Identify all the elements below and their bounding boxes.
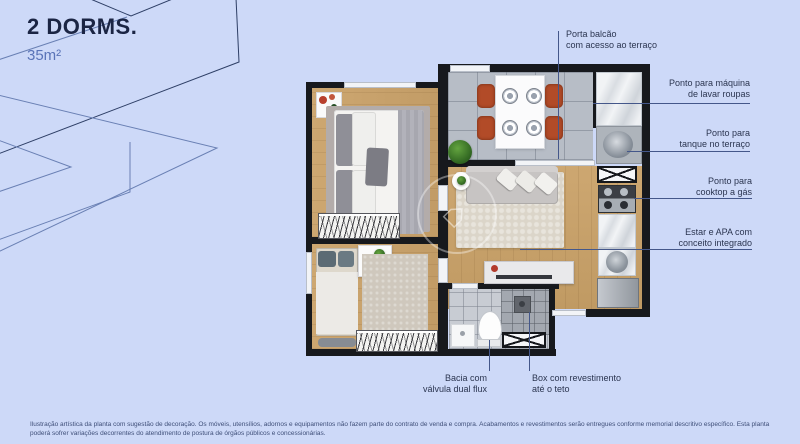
dining-chair: [477, 116, 495, 140]
callout-bacia-line: [489, 340, 490, 371]
bedroom2-wardrobe: [356, 330, 438, 352]
callout-tanque-line2: tanque no terraço: [600, 139, 750, 150]
callout-cooktop: Ponto para cooktop a gás: [602, 176, 752, 197]
vanity-faucet: [460, 331, 465, 336]
wall-mid-1: [438, 72, 448, 185]
shower-head-center: [519, 301, 525, 307]
bedroom2-door: [438, 258, 448, 283]
callout-box-line2: até o teto: [532, 384, 662, 395]
wall-mid-3: [438, 283, 448, 349]
plate: [526, 120, 542, 136]
burner: [604, 201, 612, 209]
callout-bacia-line2: válvula dual flux: [387, 384, 487, 395]
bedroom1-wardrobe: [318, 213, 400, 239]
console-decor: [491, 265, 498, 272]
tv: [496, 275, 552, 279]
callout-tanque: Ponto para tanque no terraço: [600, 128, 750, 149]
bedroom2-bench: [318, 338, 356, 347]
wall-bottom-right: [586, 309, 650, 317]
nightstand-decor-red: [319, 96, 327, 104]
callout-box: Box com revestimento até o teto: [532, 373, 662, 394]
dining-table: [496, 76, 544, 148]
bed-throw-pillow: [365, 147, 389, 186]
wall-bathroom-right: [549, 283, 555, 356]
sink-basin: [606, 251, 628, 273]
bedroom2-window: [306, 252, 312, 294]
kitchen-sink: [598, 248, 636, 276]
callout-estar: Estar e APA com conceito integrado: [602, 227, 752, 248]
plate: [502, 88, 518, 104]
callout-cooktop-line1: Ponto para: [602, 176, 752, 187]
floorplan-page: 2 DORMS. 35m²: [0, 0, 800, 444]
wall-left: [306, 82, 312, 356]
callout-estar-line: [520, 249, 752, 250]
plate: [526, 88, 542, 104]
callout-bacia-line1: Bacia com: [387, 373, 487, 384]
bathroom-door: [452, 283, 478, 289]
disclaimer-text: Ilustração artística da planta com suges…: [30, 420, 775, 438]
dining-chair: [545, 84, 563, 108]
refrigerator: [597, 278, 639, 308]
callout-porta-balcao-line1: Porta balcão: [566, 29, 657, 40]
callout-maquina-line: [593, 103, 750, 104]
dining-chair: [545, 116, 563, 140]
bedroom2-rug: [362, 254, 428, 330]
nightstand-decor-red2: [329, 94, 335, 100]
callout-maquina: Ponto para máquina de lavar roupas: [600, 78, 750, 99]
tv-console: [484, 261, 574, 284]
shower-head: [514, 296, 531, 313]
callout-tanque-line: [627, 151, 750, 152]
terrace-window: [450, 65, 490, 72]
callout-estar-line2: conceito integrado: [602, 238, 752, 249]
callout-estar-line1: Estar e APA com: [602, 227, 752, 238]
callout-cooktop-line: [634, 198, 752, 199]
callout-bacia: Bacia com válvula dual flux: [387, 373, 487, 394]
callout-tanque-line1: Ponto para: [600, 128, 750, 139]
callout-porta-balcao: Porta balcão com acesso ao terraço: [566, 29, 657, 50]
callout-porta-balcao-line2: com acesso ao terraço: [566, 40, 657, 51]
callout-cooktop-line2: cooktop a gás: [602, 187, 752, 198]
single-bed-pillow: [318, 251, 336, 267]
callout-box-line1: Box com revestimento: [532, 373, 662, 384]
brand-watermark: [417, 174, 497, 254]
shower-xbox: [502, 332, 546, 348]
plate: [502, 120, 518, 136]
terrace-plant: [448, 140, 472, 164]
burner: [620, 201, 628, 209]
entry-door: [552, 310, 586, 316]
callout-maquina-line2: de lavar roupas: [600, 89, 750, 100]
dining-chair: [477, 84, 495, 108]
callout-porta-balcao-line: [558, 31, 559, 159]
single-bed-pillow: [338, 251, 354, 267]
single-bed-sheet: [316, 272, 358, 334]
bedroom1-window: [344, 82, 416, 88]
callout-box-line: [529, 312, 530, 371]
callout-maquina-line1: Ponto para máquina: [600, 78, 750, 89]
